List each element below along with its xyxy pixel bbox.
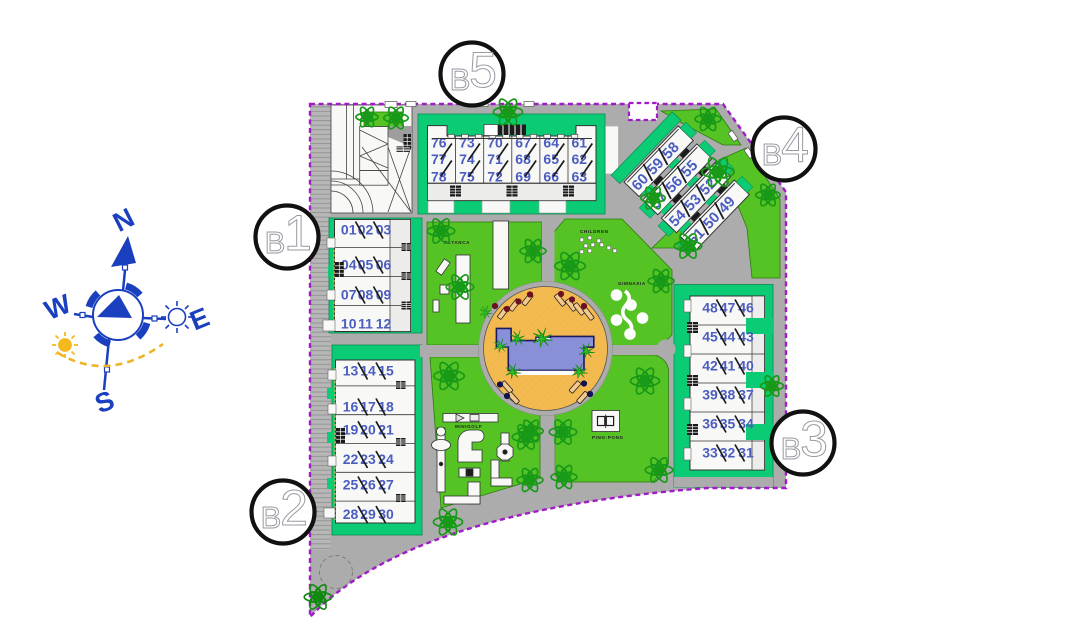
svg-text:45: 45 [702,329,718,345]
svg-text:31: 31 [738,445,754,461]
svg-text:07: 07 [341,287,357,303]
svg-text:43: 43 [738,329,754,345]
svg-text:13: 13 [343,363,359,379]
svg-text:22: 22 [343,451,359,467]
svg-text:B: B [261,500,282,535]
svg-text:28: 28 [343,506,359,522]
svg-text:40: 40 [738,358,754,374]
svg-text:19: 19 [343,421,359,437]
svg-text:1: 1 [284,205,312,261]
svg-text:33: 33 [702,445,718,461]
svg-text:B: B [762,137,783,172]
svg-text:44: 44 [720,329,736,345]
svg-text:25: 25 [343,477,359,493]
svg-text:PING-PONG: PING-PONG [592,435,624,440]
svg-text:10: 10 [341,316,357,332]
svg-text:41: 41 [720,358,736,374]
svg-text:GIMNASIA: GIMNASIA [618,281,646,286]
svg-text:01: 01 [341,222,357,238]
svg-text:37: 37 [738,387,754,403]
svg-text:48: 48 [702,300,718,316]
svg-text:5: 5 [469,42,497,98]
svg-text:4: 4 [781,117,809,173]
svg-text:47: 47 [720,300,736,316]
svg-text:B: B [450,62,471,97]
svg-text:46: 46 [738,300,754,316]
svg-text:2: 2 [280,480,308,536]
svg-text:16: 16 [343,399,359,415]
svg-text:CHILDREN: CHILDREN [580,229,609,234]
svg-text:42: 42 [702,358,718,374]
svg-text:B: B [265,225,286,260]
svg-text:11: 11 [358,316,373,332]
svg-text:12: 12 [376,316,392,332]
svg-text:35: 35 [720,416,736,432]
svg-text:76: 76 [431,135,447,151]
svg-text:MINIGOLF: MINIGOLF [455,424,482,429]
svg-text:38: 38 [720,387,736,403]
svg-text:39: 39 [702,387,718,403]
svg-text:3: 3 [800,411,828,467]
svg-text:34: 34 [738,416,754,432]
svg-text:32: 32 [720,445,736,461]
svg-text:36: 36 [702,416,718,432]
svg-text:B: B [781,431,802,466]
